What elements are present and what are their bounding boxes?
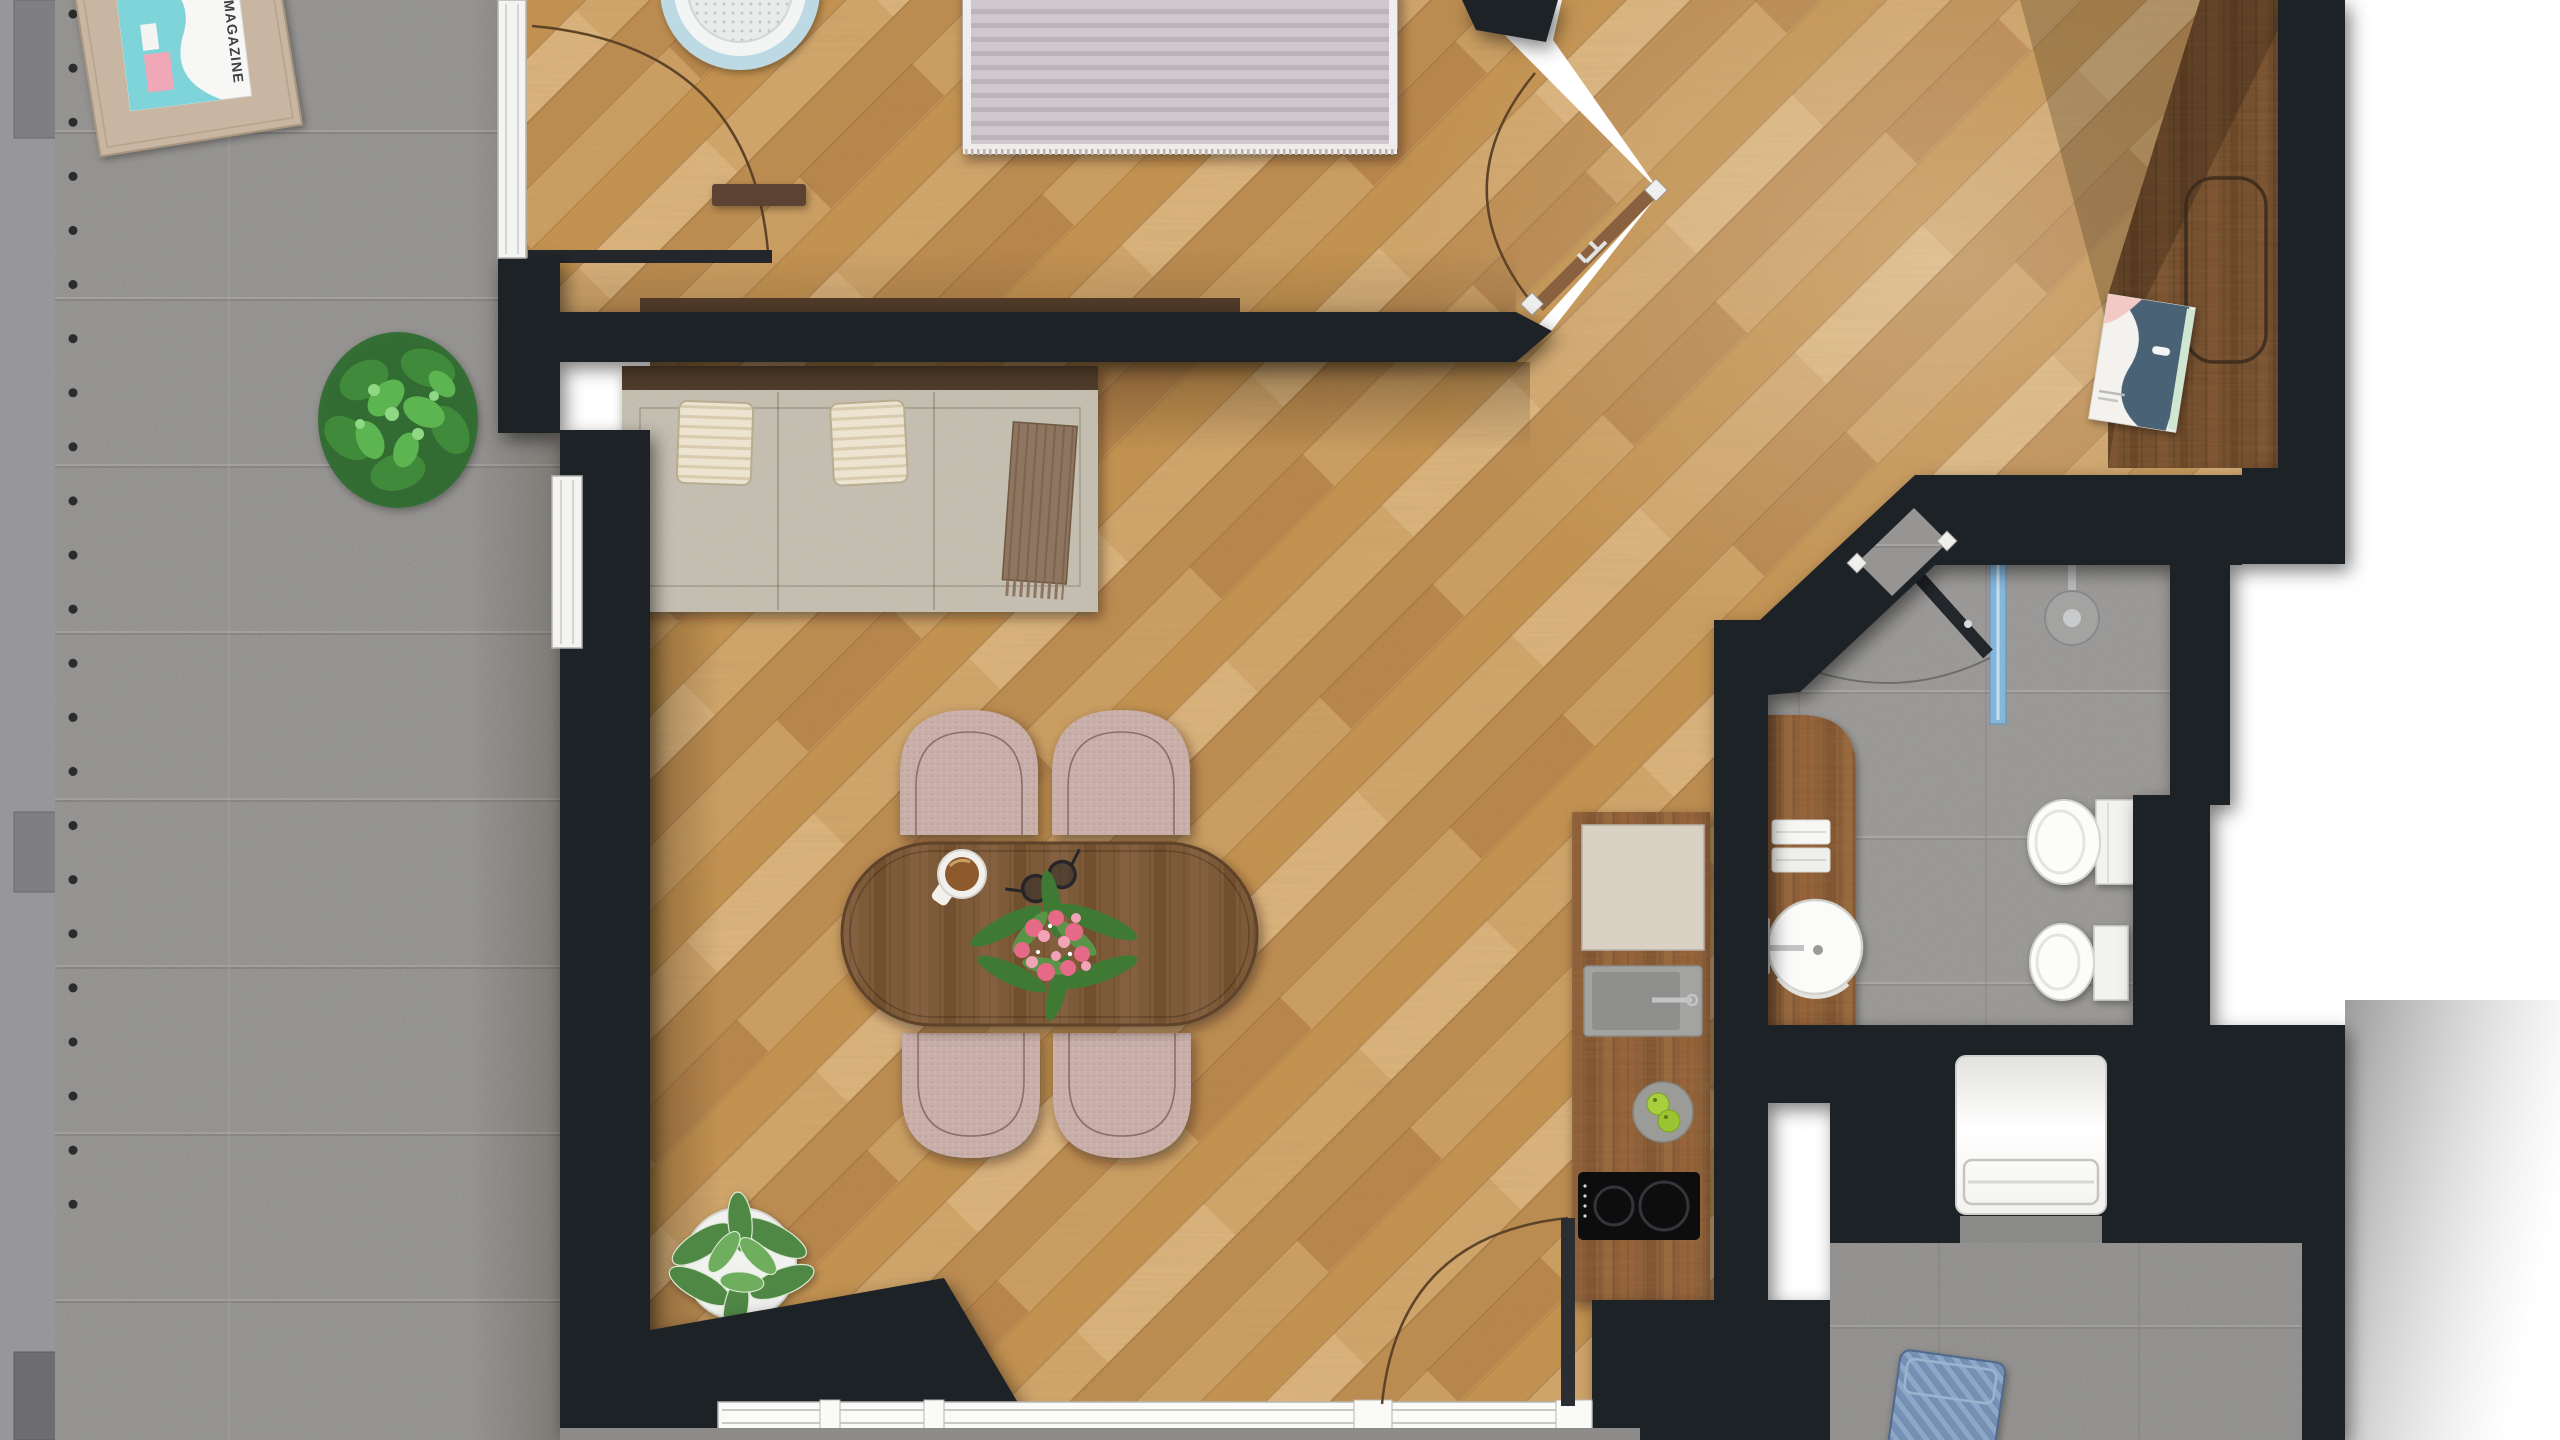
magazine-cover-pink [144,52,174,93]
wall-right-joint [2242,468,2345,564]
sofa-pillow-right [830,400,908,486]
bathroom-vanity [1758,715,1862,1028]
walkway-post-top [14,0,58,138]
kitchen [1572,812,1710,1302]
toilet [2028,800,2134,884]
floor-plan-canvas: MAGAZINE [0,0,2560,1440]
wall-bedroom-living [560,312,1552,362]
bathroom-door-handle [1964,620,1972,628]
floor-plan-stage: MAGAZINE [0,0,2560,1440]
desk-magazine [2089,294,2196,432]
dining-chair-top-left [900,710,1038,835]
cooktop [1578,1172,1700,1240]
apple [1658,1110,1680,1132]
sofa-back-trim [622,366,1098,392]
terrace-door-leaf [1561,1218,1575,1406]
sofa-pillow-left [677,401,754,486]
bedroom-balcony-door-leaf [528,250,772,263]
walkway-post-middle [14,812,58,892]
bedroom-wall-shelf [712,184,806,206]
bathtub [1956,1056,2106,1214]
dining-chair-bottom-right [1053,1033,1191,1158]
fruit-plate [1633,1082,1693,1142]
sofa-throw [1002,422,1077,592]
white-margin-shadow [2345,1000,2560,1440]
balcony: MAGAZINE [55,0,560,1440]
wall-bathroom-right-upper [2170,520,2230,805]
balcony-magazine: MAGAZINE [115,0,252,111]
dining-chair-top-right [1052,710,1190,835]
living-window-left [552,476,582,648]
sofa [622,366,1098,612]
wall-bathroom-right-lower [2133,795,2210,1035]
bedroom-balcony-door-frame [498,0,526,258]
wall-bathroom-left [1714,652,1768,1345]
kitchen-sink [1584,966,1702,1036]
exterior-walkway [0,0,55,1440]
wall-below-kitchen [1592,1300,1830,1440]
dining-chair-bottom-left [902,1033,1040,1158]
window-sill-concrete [560,1428,1640,1440]
walkway-post-bottom [14,1352,58,1440]
bed [963,0,1397,154]
bed-duvet [963,0,1397,148]
kitchen-worktop [1582,825,1704,950]
wall-balcony-bedroom [498,258,560,433]
bidet [2030,924,2128,1000]
bath-mat [1960,1216,2102,1246]
